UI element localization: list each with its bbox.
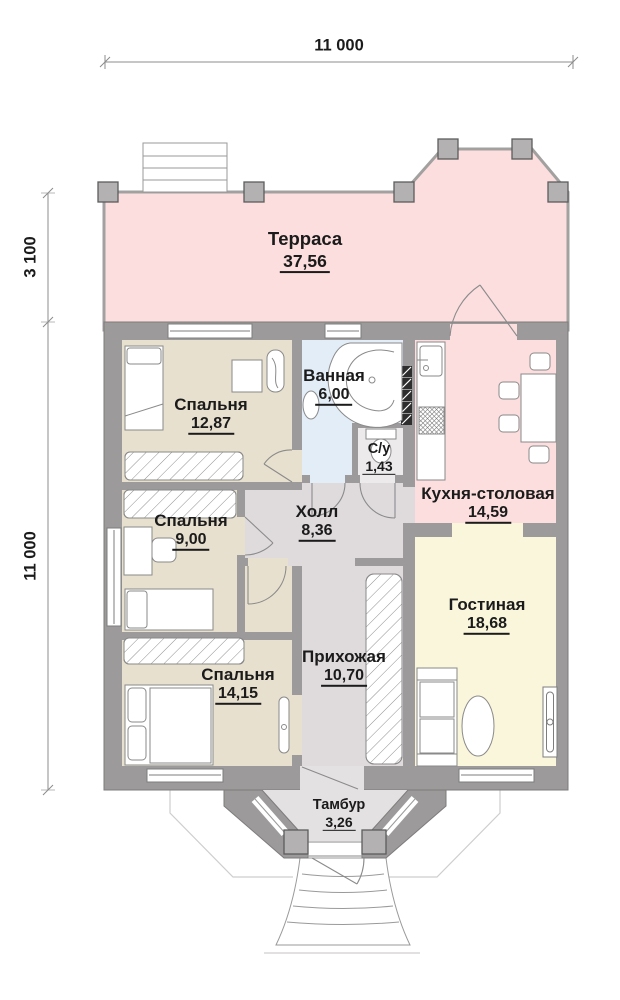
room-label-kitchen: Кухня-столовая 14,59 xyxy=(421,484,554,524)
dimension-house-depth-label: 11 000 xyxy=(22,531,41,581)
bed-icon xyxy=(125,589,213,630)
chair-icon xyxy=(530,353,550,370)
room-label-wc: С/у 1,43 xyxy=(362,441,395,475)
desk-icon xyxy=(124,527,152,575)
room-label-bedroom2: Спальня 9,00 xyxy=(154,511,227,551)
chair-icon xyxy=(529,446,549,463)
dimension-terrace-depth-label: 3 100 xyxy=(22,236,41,277)
pillar xyxy=(548,182,568,202)
room-label-vestibule: Тамбур 3,26 xyxy=(313,797,366,831)
steps-icon xyxy=(264,858,420,953)
bed-icon xyxy=(125,346,163,430)
room-label-bedroom3: Спальня 14,15 xyxy=(201,665,274,705)
door-leaf-icon xyxy=(279,697,289,753)
chair-icon xyxy=(499,382,519,399)
room-label-terrace: Терраса 37,56 xyxy=(268,229,342,273)
dimension-top-label: 11 000 xyxy=(314,37,364,56)
coffee-table-icon xyxy=(462,696,494,756)
wardrobe-icon xyxy=(124,638,244,664)
pillar xyxy=(284,830,308,854)
dining-table-icon xyxy=(521,374,556,442)
vent-shaft-icon xyxy=(401,366,412,425)
dresser-icon xyxy=(232,360,262,392)
pillar xyxy=(98,182,118,202)
room-label-entry: Прихожая 10,70 xyxy=(302,647,386,687)
pillar xyxy=(244,182,264,202)
stove-icon xyxy=(419,407,444,434)
terrace-stairs-icon xyxy=(143,143,227,192)
wardrobe-icon xyxy=(125,452,243,480)
entrance-door xyxy=(308,842,362,856)
pillar xyxy=(362,830,386,854)
double-bed-icon xyxy=(125,685,213,765)
pillar xyxy=(512,139,532,159)
mirror-cabinet-icon xyxy=(267,350,284,392)
room-label-bedroom1: Спальня 12,87 xyxy=(174,395,247,435)
sofa-icon xyxy=(417,668,457,766)
pillar xyxy=(438,139,458,159)
room-label-bathroom: Ванная 6,00 xyxy=(303,366,365,406)
sink-icon xyxy=(417,346,442,376)
room-label-hall: Холл 8,36 xyxy=(296,502,339,542)
pillar xyxy=(394,182,414,202)
chair-icon xyxy=(499,415,519,432)
room-label-living: Гостиная 18,68 xyxy=(449,595,526,635)
floor-plan: 11 000 3 100 11 000 Терраса 37,56 Спальн… xyxy=(0,0,620,1000)
